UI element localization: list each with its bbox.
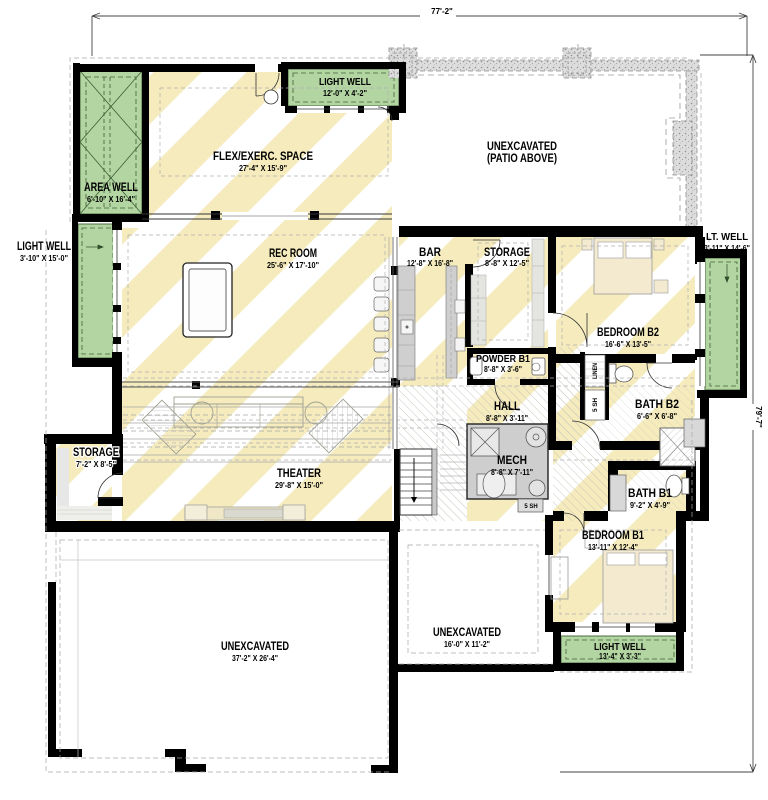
svg-text:LIGHT WELL: LIGHT WELL bbox=[319, 77, 371, 88]
svg-text:29'-8" X 15'-0": 29'-8" X 15'-0" bbox=[275, 481, 323, 490]
svg-text:13'-11" X 12'-4": 13'-11" X 12'-4" bbox=[588, 543, 638, 552]
svg-text:12'-0" X 4'-2": 12'-0" X 4'-2" bbox=[323, 89, 367, 98]
svg-text:REC ROOM: REC ROOM bbox=[269, 246, 317, 260]
svg-text:THEATER: THEATER bbox=[277, 466, 321, 480]
svg-text:7'-2" X 8'-5": 7'-2" X 8'-5" bbox=[76, 460, 116, 469]
svg-text:LT. WELL: LT. WELL bbox=[706, 232, 748, 243]
svg-text:UNEXCAVATED: UNEXCAVATED bbox=[433, 625, 501, 639]
svg-text:25'-6" X 17'-10": 25'-6" X 17'-10" bbox=[267, 261, 319, 270]
svg-text:12'-8" X 16'-8": 12'-8" X 16'-8" bbox=[407, 259, 453, 268]
svg-text:6'-6" X 6'-8": 6'-6" X 6'-8" bbox=[637, 412, 677, 421]
svg-text:(PATIO ABOVE): (PATIO ABOVE) bbox=[487, 151, 557, 165]
svg-text:STORAGE: STORAGE bbox=[73, 445, 119, 459]
svg-text:UNEXCAVATED: UNEXCAVATED bbox=[221, 639, 289, 653]
svg-text:77'-2": 77'-2" bbox=[431, 7, 453, 16]
svg-text:9'-2" X 4'-9": 9'-2" X 4'-9" bbox=[630, 501, 670, 510]
svg-text:POWDER B1: POWDER B1 bbox=[476, 354, 530, 365]
svg-text:5 SH: 5 SH bbox=[524, 504, 537, 510]
svg-text:3'-10" X 15'-0": 3'-10" X 15'-0" bbox=[20, 254, 68, 263]
svg-text:STORAGE: STORAGE bbox=[484, 245, 530, 259]
svg-text:8'-8" X 12'-5": 8'-8" X 12'-5" bbox=[485, 259, 529, 268]
svg-text:FLEX/EXERC. SPACE: FLEX/EXERC. SPACE bbox=[213, 149, 313, 163]
svg-text:AREA WELL: AREA WELL bbox=[84, 180, 138, 194]
svg-text:8'-8" X 7'-11": 8'-8" X 7'-11" bbox=[491, 468, 533, 477]
svg-text:13'-4" X 3'-3": 13'-4" X 3'-3" bbox=[599, 652, 641, 661]
svg-text:BEDROOM B2: BEDROOM B2 bbox=[597, 325, 659, 339]
svg-text:6'-10" X 16'-4": 6'-10" X 16'-4" bbox=[87, 195, 135, 204]
svg-text:16'-0" X 11'-2": 16'-0" X 11'-2" bbox=[444, 640, 490, 649]
svg-text:79'-7": 79'-7" bbox=[754, 406, 763, 428]
svg-text:BEDROOM B1: BEDROOM B1 bbox=[582, 528, 644, 542]
svg-text:8'-8" X 3'-6": 8'-8" X 3'-6" bbox=[484, 365, 522, 374]
svg-text:MECH: MECH bbox=[497, 453, 527, 467]
svg-text:5 SH: 5 SH bbox=[593, 398, 599, 412]
svg-text:37'-2" X 26'-4": 37'-2" X 26'-4" bbox=[232, 654, 278, 663]
svg-text:27'-4" X 15'-9": 27'-4" X 15'-9" bbox=[239, 164, 287, 173]
svg-text:BAR: BAR bbox=[419, 245, 441, 259]
svg-text:8'-8" X 3'-11": 8'-8" X 3'-11" bbox=[486, 414, 528, 423]
svg-text:HALL: HALL bbox=[494, 399, 520, 413]
svg-text:BATH B1: BATH B1 bbox=[628, 486, 672, 500]
svg-text:LIGHT WELL: LIGHT WELL bbox=[17, 239, 71, 253]
svg-text:3'-11" X 14'-6": 3'-11" X 14'-6" bbox=[704, 244, 750, 253]
svg-text:16'-6" X 13'-5": 16'-6" X 13'-5" bbox=[605, 340, 651, 349]
svg-text:BATH B2: BATH B2 bbox=[635, 397, 679, 411]
svg-text:LINEN: LINEN bbox=[593, 363, 599, 379]
